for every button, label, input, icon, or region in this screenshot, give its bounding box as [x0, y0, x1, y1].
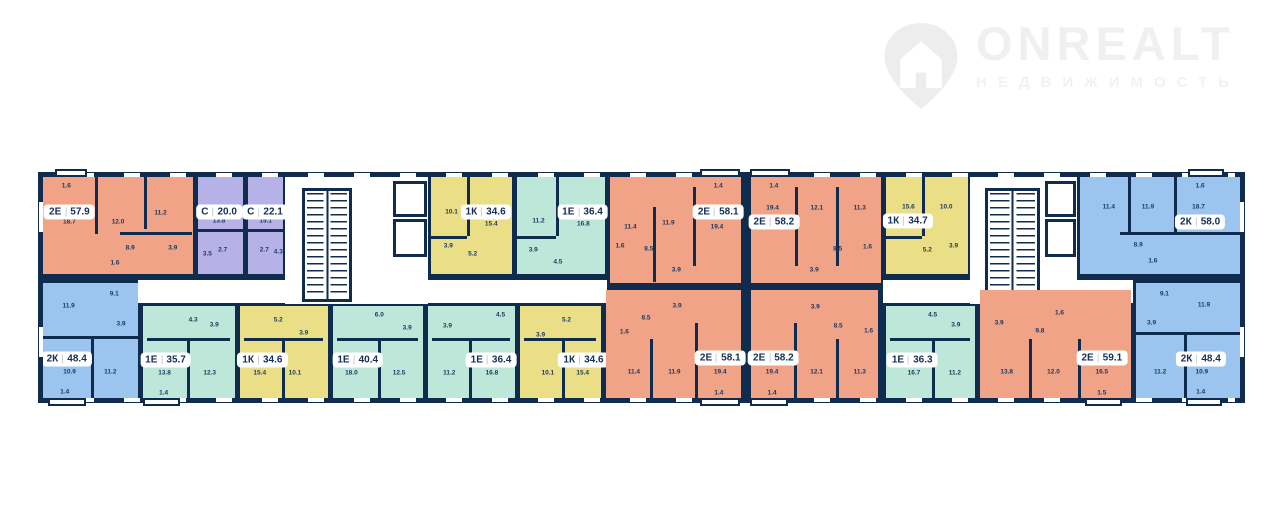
room-area-label: 1.4 — [1196, 389, 1205, 396]
apartment-badge[interactable]: 2Е58.1 — [695, 351, 746, 366]
room-area-label: 12.5 — [393, 369, 406, 376]
apartment-2Е-59.1[interactable]: 3.99.81.613.812.016.51.52Е59.1 — [980, 290, 1131, 401]
room-area-label: 16.8 — [486, 369, 499, 376]
apartment-badge[interactable]: 1К34.6 — [461, 205, 511, 220]
badge-divider — [481, 208, 482, 217]
top-windows — [48, 173, 1235, 177]
room-area-label: 10.0 — [940, 204, 953, 211]
room-area-label: 11.2 — [949, 369, 961, 376]
room-area-label: 3.9 — [403, 325, 412, 332]
brand-name: ONREALT — [976, 20, 1240, 67]
badge-divider — [908, 355, 909, 364]
room-area-label: 3.9 — [995, 319, 1004, 326]
apartment-area: 35.7 — [166, 354, 185, 365]
apartment-type: 1Е — [892, 354, 904, 365]
apartment-1К-34.6[interactable]: 5.23.915.410.11К34.6 — [240, 306, 328, 401]
apartment-area: 36.4 — [583, 207, 602, 218]
apartment-area: 58.2 — [774, 353, 793, 364]
interior-wall — [198, 229, 243, 232]
room-area-label: 11.9 — [1142, 204, 1154, 211]
badge-divider — [770, 218, 771, 227]
elevator-shaft — [1045, 181, 1076, 217]
room-area-label: 3.9 — [811, 304, 820, 311]
interior-wall — [378, 338, 381, 401]
balcony-railing — [143, 398, 180, 406]
apartment-badge[interactable]: 1К34.6 — [558, 352, 608, 367]
apartment-type: 1Е — [145, 354, 157, 365]
room-area-label: 12.3 — [203, 369, 216, 376]
interior-wall — [517, 236, 557, 239]
balcony-railing — [1085, 398, 1122, 406]
onrealt-watermark: ONREALT НЕДВИЖИМОСТЬ — [882, 20, 1240, 117]
room-area-label: 1.4 — [159, 389, 168, 396]
apartment-1Е-36.4[interactable]: 11.216.83.94.51Е36.4 — [517, 175, 605, 274]
badge-divider — [578, 208, 579, 217]
badge-divider — [212, 208, 213, 217]
balcony-railing — [750, 169, 790, 177]
apartment-area: 48.4 — [67, 354, 86, 365]
apartment-badge[interactable]: 2Е58.1 — [693, 205, 744, 220]
apartment-type: 2Е — [700, 353, 712, 364]
apartment-badge[interactable]: 2Е59.1 — [1076, 351, 1127, 366]
room-area-label: 1.6 — [615, 242, 624, 249]
apartment-type: 2К — [47, 354, 59, 365]
interior-wall — [41, 336, 138, 339]
apartment-badge[interactable]: 1Е36.3 — [887, 352, 938, 367]
interior-wall — [1128, 175, 1131, 232]
room-area-label: 6.0 — [375, 312, 384, 319]
onrealt-logo-icon — [882, 20, 960, 117]
apartment-badge[interactable]: 1Е36.4 — [557, 205, 608, 220]
room-area-label: 8.5 — [641, 315, 650, 322]
interior-wall — [836, 187, 839, 266]
room-area-label: 15.4 — [253, 369, 266, 376]
apartment-type: 1Е — [337, 354, 349, 365]
room-area-label: 3.9 — [443, 323, 452, 330]
room-area-label: 1.4 — [769, 183, 778, 190]
room-area-label: 13.8 — [158, 369, 171, 376]
apartment-type: 2Е — [698, 207, 710, 218]
room-area-label: 4.5 — [928, 312, 937, 319]
apartment-area: 48.4 — [1201, 354, 1220, 365]
interior-wall — [836, 339, 839, 400]
room-area-label: 4.5 — [553, 258, 562, 265]
interior-wall — [693, 187, 696, 266]
room-area-label: 3.5 — [203, 250, 212, 257]
right-wall-window — [1240, 327, 1244, 357]
room-area-label: 3.9 — [529, 246, 538, 253]
staircase[interactable] — [985, 188, 1040, 302]
room-area-label: 12.1 — [810, 368, 823, 375]
apartment-area: 34.6 — [584, 354, 603, 365]
room-area-label: 10.1 — [542, 369, 555, 376]
apartment-type: 1К — [242, 354, 254, 365]
room-area-label: 3.9 — [951, 321, 960, 328]
elevator-shaft — [1045, 219, 1076, 257]
building: 1.618.712.011.28.93.91.62Е57.913.82.73.5… — [38, 172, 1245, 403]
badge-divider — [1196, 355, 1197, 364]
apartment-type: 1Е — [562, 207, 574, 218]
interior-wall — [248, 229, 283, 232]
room-area-label: 3.9 — [116, 320, 125, 327]
apartment-type: С — [201, 207, 208, 218]
room-area-label: 11.2 — [1154, 369, 1166, 376]
left-wall-window — [39, 327, 43, 357]
room-area-label: 11.3 — [854, 204, 866, 211]
room-area-label: 11.2 — [104, 369, 116, 376]
badge-divider — [1098, 354, 1099, 363]
room-area-label: 5.2 — [923, 246, 932, 253]
right-wall-window — [1240, 202, 1244, 232]
apartment-badge[interactable]: С20.0 — [196, 205, 242, 220]
apartment-area: 22.1 — [263, 207, 282, 218]
apartment-type: 1К — [563, 354, 575, 365]
badge-divider — [716, 354, 717, 363]
apartment-1Е-35.7[interactable]: 4.33.913.812.31.41Е35.7 — [143, 306, 235, 401]
balcony-railing — [48, 398, 86, 406]
apartment-badge[interactable]: 1Е36.4 — [466, 352, 517, 367]
interior-wall — [282, 338, 285, 401]
room-area-label: 12.1 — [810, 204, 823, 211]
room-area-label: 16.5 — [1095, 368, 1108, 375]
apartment-area: 34.7 — [908, 216, 927, 227]
apartment-1Е-36.3[interactable]: 4.53.916.711.21Е36.3 — [886, 306, 975, 401]
room-area-label: 16.8 — [577, 221, 590, 228]
apartment-badge[interactable]: 2Е58.2 — [749, 215, 800, 230]
balcony-railing — [1186, 398, 1222, 406]
apartment-2Е-58.1[interactable]: 3.98.51.611.411.919.41.42Е58.1 — [606, 290, 741, 401]
room-area-label: 1.6 — [620, 328, 629, 335]
room-area-label: 8.5 — [644, 246, 653, 253]
apartment-area: 40.4 — [359, 354, 378, 365]
room-area-label: 15.6 — [902, 204, 915, 211]
apartment-type: 2Е — [754, 217, 766, 228]
room-area-label: 9.8 — [1035, 327, 1044, 334]
room-area-label: 5.2 — [274, 316, 283, 323]
interior-wall — [120, 232, 193, 235]
balcony-railing — [750, 398, 788, 406]
stair-rail — [324, 191, 331, 299]
apartment-type: 1К — [466, 207, 478, 218]
room-area-label: 3.9 — [1147, 319, 1156, 326]
stair-rail — [1009, 191, 1016, 299]
apartment-1К-34.6[interactable]: 10.115.43.95.21К34.6 — [431, 175, 512, 274]
apartment-1К-34.6[interactable]: 5.23.910.115.41К34.6 — [520, 306, 601, 401]
apartment-badge[interactable]: 2К48.4 — [42, 352, 92, 367]
apartment-type: 2Е — [1081, 353, 1093, 364]
interior-wall — [144, 175, 147, 229]
apartment-badge[interactable]: 1Е35.7 — [140, 352, 191, 367]
badge-divider — [354, 355, 355, 364]
elevator-shaft — [393, 181, 427, 217]
room-area-label: 1.6 — [864, 327, 873, 334]
room-area-label: 3.9 — [299, 330, 308, 337]
apartment-2К-48.4[interactable]: 11.99.13.910.911.21.42К48.4 — [41, 283, 138, 401]
badge-divider — [714, 208, 715, 217]
badge-divider — [65, 208, 66, 217]
apartment-2К-48.4[interactable]: 9.111.93.911.210.91.42К48.4 — [1136, 283, 1243, 401]
room-area-label: 1.6 — [62, 183, 71, 190]
apartment-area: 34.6 — [263, 354, 282, 365]
badge-divider — [258, 355, 259, 364]
apartment-type: 1Е — [471, 354, 483, 365]
room-area-label: 5.2 — [562, 316, 571, 323]
apartment-2Е-58.2[interactable]: 3.98.51.619.412.111.31.42Е58.2 — [751, 290, 878, 401]
room-area-label: 15.4 — [485, 221, 498, 228]
apartment-area: 58.2 — [775, 217, 794, 228]
room-area-label: 13.8 — [1000, 368, 1013, 375]
apartment-area: 57.9 — [70, 207, 89, 218]
apartment-badge[interactable]: 1К34.6 — [237, 352, 287, 367]
interior-wall — [886, 236, 923, 239]
balcony-railing — [700, 398, 740, 406]
badge-divider — [579, 355, 580, 364]
room-area-label: 11.9 — [668, 368, 680, 375]
interior-wall — [469, 338, 472, 401]
room-area-label: 3.9 — [949, 242, 958, 249]
apartment-2Е-58.1[interactable]: 1.419.411.911.48.51.63.92Е58.1 — [610, 175, 741, 283]
room-area-label: 1.4 — [714, 389, 723, 396]
room-area-label: 1.6 — [1196, 183, 1205, 190]
room-area-label: 12.0 — [1047, 368, 1060, 375]
interior-wall — [524, 338, 597, 341]
room-area-label: 11.4 — [628, 368, 640, 375]
room-area-label: 11.4 — [1103, 204, 1115, 211]
room-area-label: 15.4 — [576, 369, 589, 376]
room-area-label: 11.3 — [854, 368, 866, 375]
room-area-label: 10.9 — [1196, 369, 1209, 376]
left-wall-window — [39, 202, 43, 232]
room-area-label: 4.3 — [274, 248, 283, 255]
room-area-label: 8.9 — [1134, 241, 1143, 248]
badge-divider — [769, 354, 770, 363]
room-area-label: 4.5 — [496, 312, 505, 319]
room-area-label: 16.7 — [908, 369, 921, 376]
interior-wall — [1078, 339, 1081, 400]
room-area-label: 19.4 — [766, 368, 779, 375]
room-area-label: 18.0 — [345, 369, 358, 376]
apartment-С-22.1[interactable]: 15.12.74.3С22.1 — [248, 175, 283, 274]
interior-wall — [890, 338, 970, 341]
interior-wall — [650, 339, 653, 400]
apartment-1К-34.7[interactable]: 15.610.05.23.91К34.7 — [886, 175, 968, 274]
interior-wall — [562, 338, 565, 401]
interior-wall — [1136, 332, 1243, 335]
apartment-area: 58.1 — [721, 353, 740, 364]
room-area-label: 1.6 — [1055, 309, 1064, 316]
apartment-area: 36.4 — [492, 354, 511, 365]
badge-divider — [62, 355, 63, 364]
room-area-label: 11.2 — [532, 218, 544, 225]
room-area-label: 18.7 — [1192, 204, 1205, 211]
apartment-type: 2К — [1180, 217, 1192, 228]
room-area-label: 11.4 — [624, 224, 636, 231]
room-area-label: 10.9 — [63, 369, 76, 376]
apartment-badge[interactable]: 2Е57.9 — [44, 205, 95, 220]
room-area-label: 3.9 — [536, 331, 545, 338]
apartment-С-20.0[interactable]: 13.82.73.5С20.0 — [198, 175, 243, 274]
apartment-badge[interactable]: 1Е40.4 — [332, 352, 383, 367]
room-area-label: 3.9 — [210, 321, 219, 328]
apartment-2Е-58.2[interactable]: 1.419.412.111.38.51.63.92Е58.2 — [751, 175, 881, 283]
room-area-label: 8.9 — [126, 244, 135, 251]
balcony-railing — [55, 169, 87, 177]
apartment-area: 59.1 — [1103, 353, 1122, 364]
apartment-type: 2Е — [753, 353, 765, 364]
room-area-label: 12.0 — [112, 219, 125, 226]
room-area-label: 10.1 — [289, 369, 302, 376]
apartment-badge[interactable]: 2К48.4 — [1176, 352, 1226, 367]
elevator-shaft — [393, 219, 427, 257]
interior-wall — [1029, 339, 1032, 400]
room-area-label: 3.9 — [444, 242, 453, 249]
room-area-label: 1.5 — [1097, 389, 1106, 396]
interior-wall — [932, 338, 935, 401]
room-area-label: 11.9 — [62, 303, 74, 310]
apartment-badge[interactable]: С22.1 — [242, 205, 288, 220]
room-area-label: 1.4 — [768, 389, 777, 396]
room-area-label: 11.2 — [443, 369, 455, 376]
room-area-label: 1.6 — [110, 259, 119, 266]
badge-divider — [1196, 218, 1197, 227]
interior-wall — [1120, 232, 1242, 235]
room-area-label: 4.3 — [189, 316, 198, 323]
room-area-label: 5.2 — [468, 250, 477, 257]
interior-wall — [95, 175, 98, 234]
room-area-label: 19.4 — [711, 224, 724, 231]
apartment-area: 36.3 — [913, 354, 932, 365]
room-area-label: 8.5 — [833, 246, 842, 253]
room-area-label: 3.9 — [673, 303, 682, 310]
apartment-area: 34.6 — [486, 207, 505, 218]
room-area-label: 3.9 — [810, 266, 819, 273]
balcony-railing — [1188, 169, 1224, 177]
room-area-label: 9.1 — [1160, 291, 1169, 298]
room-area-label: 11.9 — [662, 220, 674, 227]
room-area-label: 1.6 — [863, 243, 872, 250]
room-area-label: 11.2 — [154, 210, 166, 217]
interior-wall — [431, 236, 467, 239]
interior-wall — [187, 338, 190, 401]
interior-wall — [91, 336, 94, 401]
room-area-label: 19.4 — [714, 368, 727, 375]
room-area-label: 19.4 — [766, 204, 779, 211]
room-area-label: 9.1 — [110, 291, 119, 298]
badge-divider — [903, 217, 904, 226]
apartment-type: С — [247, 207, 254, 218]
apartment-type: 1К — [888, 216, 900, 227]
apartment-1Е-36.4[interactable]: 4.53.911.216.81Е36.4 — [428, 306, 515, 401]
staircase[interactable] — [302, 188, 352, 302]
apartment-2К-58.0[interactable]: 1.611.411.918.78.91.62К58.0 — [1080, 175, 1243, 274]
room-area-label: 8.5 — [834, 323, 843, 330]
room-area-label: 3.9 — [168, 244, 177, 251]
badge-divider — [161, 355, 162, 364]
apartment-area: 58.0 — [1201, 217, 1220, 228]
badge-divider — [487, 355, 488, 364]
room-area-label: 2.7 — [260, 246, 269, 253]
room-area-label: 1.6 — [1148, 257, 1157, 264]
apartment-badge[interactable]: 2К58.0 — [1175, 215, 1225, 230]
room-area-label: 2.7 — [218, 246, 227, 253]
apartment-2Е-57.9[interactable]: 1.618.712.011.28.93.91.62Е57.9 — [41, 175, 193, 274]
apartment-badge[interactable]: 1К34.7 — [883, 214, 933, 229]
room-area-label: 3.9 — [672, 266, 681, 273]
room-area-label: 10.1 — [445, 209, 458, 216]
apartment-1Е-40.4[interactable]: 6.03.918.012.51Е40.4 — [333, 306, 423, 401]
room-area-label: 11.9 — [1198, 301, 1210, 308]
apartment-area: 20.0 — [217, 207, 236, 218]
apartment-area: 58.1 — [719, 207, 738, 218]
apartment-type: 2Е — [49, 207, 61, 218]
floor-plan-page: ONREALT НЕДВИЖИМОСТЬ 1.618.712.011.28.93… — [0, 0, 1280, 531]
bottom-windows — [48, 398, 1235, 402]
badge-divider — [258, 208, 259, 217]
apartment-badge[interactable]: 2Е58.2 — [748, 351, 799, 366]
room-area-label: 1.4 — [60, 389, 69, 396]
balcony-railing — [700, 169, 740, 177]
room-area-label: 1.4 — [714, 183, 723, 190]
apartment-type: 2К — [1181, 354, 1193, 365]
brand-subtitle: НЕДВИЖИМОСТЬ — [976, 74, 1240, 91]
